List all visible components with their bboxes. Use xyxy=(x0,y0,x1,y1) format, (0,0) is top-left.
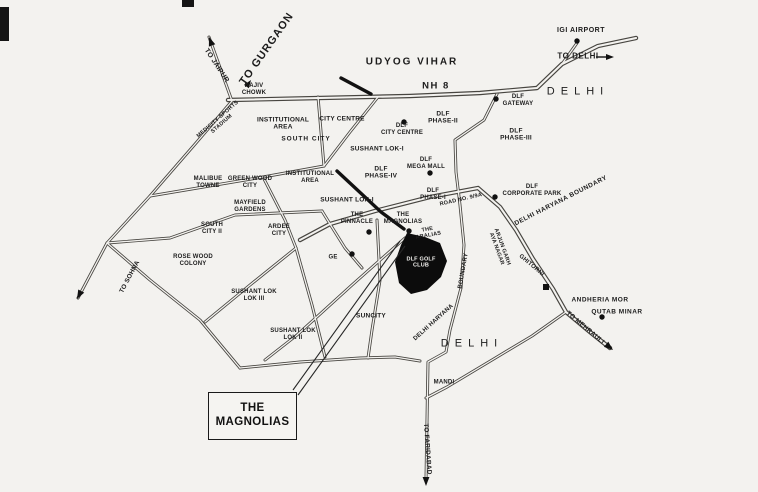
label-south-city: SOUTH CITY xyxy=(281,135,330,142)
label-the-magnolias: THE MAGNOLIAS xyxy=(384,212,422,226)
the-magnolias-dot xyxy=(406,228,411,233)
label-andheria-mor: ANDHERIA MOR xyxy=(571,296,628,303)
label-mandi: MANDI xyxy=(434,380,455,387)
label-city-centre: CITY CENTRE xyxy=(319,115,364,122)
label-sushant-lok-1b: SUSHANT LOK-I xyxy=(320,196,374,203)
label-rajiv-chowk: RAJIV CHOWK xyxy=(242,83,266,97)
label-dlf-phase-1: DLF PHASE-I xyxy=(420,188,446,202)
label-igi-airport: IGI AIRPORT xyxy=(557,27,605,35)
label-dlf-corporate-park: DLF CORPORATE PARK xyxy=(503,184,562,198)
igi-airport-dot xyxy=(574,38,579,43)
label-qutab-minar: QUTAB MINAR xyxy=(591,308,642,315)
road-casings xyxy=(78,37,636,480)
location-map: TO JAIPUR TO GURGAON UDYOG VIHAR NH 8 IG… xyxy=(0,0,758,492)
road-citycentre-west-core xyxy=(318,97,324,166)
road-lok3-core xyxy=(205,248,296,322)
label-delhi-north: DELHI xyxy=(547,86,609,99)
label-udyog-vihar: UDYOG VIHAR xyxy=(366,56,459,68)
dlf-corporate-park-dot xyxy=(492,194,497,199)
ge-dot xyxy=(349,251,354,256)
label-dlf-golf-club: DLF GOLF CLUB xyxy=(406,257,435,270)
label-institutional-area-2: INSTITUTIONAL AREA xyxy=(286,171,334,185)
scan-smudge-top xyxy=(182,0,194,7)
label-delhi-south: DELHI xyxy=(441,338,503,351)
label-dlf-mega-mall: DLF MEGA MALL xyxy=(407,157,445,171)
label-sushant-lok-3: SUSHANT LOK LOK III xyxy=(231,289,277,303)
label-institutional-area-1: INSTITUTIONAL AREA xyxy=(257,117,309,132)
dark-segment-udyog xyxy=(341,78,371,94)
andheria-mor-marker xyxy=(543,284,549,290)
label-the-pinnacle: THE PINNACLE xyxy=(341,212,373,226)
the-magnolias-callout-box: THE MAGNOLIAS xyxy=(208,392,297,440)
label-dlf-phase-2: DLF PHASE-II xyxy=(428,111,458,126)
to-delhi-arrow-icon xyxy=(606,54,614,60)
road-citycentre-east-core xyxy=(324,97,378,166)
to-faridabad-arrow-icon xyxy=(423,477,430,486)
road-cores xyxy=(78,37,636,480)
label-dlf-gateway: DLF GATEWAY xyxy=(503,94,534,108)
scan-smudge-left xyxy=(0,7,9,41)
label-south-city-2: SOUTH CITY II xyxy=(201,222,223,236)
dlf-gateway-dot xyxy=(493,96,498,101)
label-nh-8: NH 8 xyxy=(422,82,450,93)
label-malibue-towne: MALIBUE TOWNE xyxy=(194,176,223,190)
label-mayfield-gardens: MAYFIELD GARDENS xyxy=(234,200,266,214)
dlf-mega-mall-dot xyxy=(427,170,432,175)
label-dlf-city-centre: DLF CITY CENTRE xyxy=(381,123,423,137)
label-ardee-city: ARDEE CITY xyxy=(268,224,290,238)
label-rose-wood-colony: ROSE WOOD COLONY xyxy=(173,254,213,268)
road-link-core xyxy=(322,211,330,224)
label-suncity: SUNCITY xyxy=(356,312,386,319)
the-pinnacle-dot xyxy=(366,229,371,234)
label-dlf-phase-3: DLF PHASE-III xyxy=(500,128,532,143)
road-network xyxy=(0,0,758,492)
label-green-wood-city: GREEN WOOD CITY xyxy=(228,176,272,190)
label-dlf-phase-4: DLF PHASE-IV xyxy=(365,166,397,181)
label-to-delhi: TO DELHI xyxy=(557,51,598,60)
label-sushant-lok-1a: SUSHANT LOK-I xyxy=(350,145,404,152)
label-sushant-lok-2: SUSHANT LOK LOK II xyxy=(270,328,316,342)
label-ge: GE xyxy=(328,255,337,262)
